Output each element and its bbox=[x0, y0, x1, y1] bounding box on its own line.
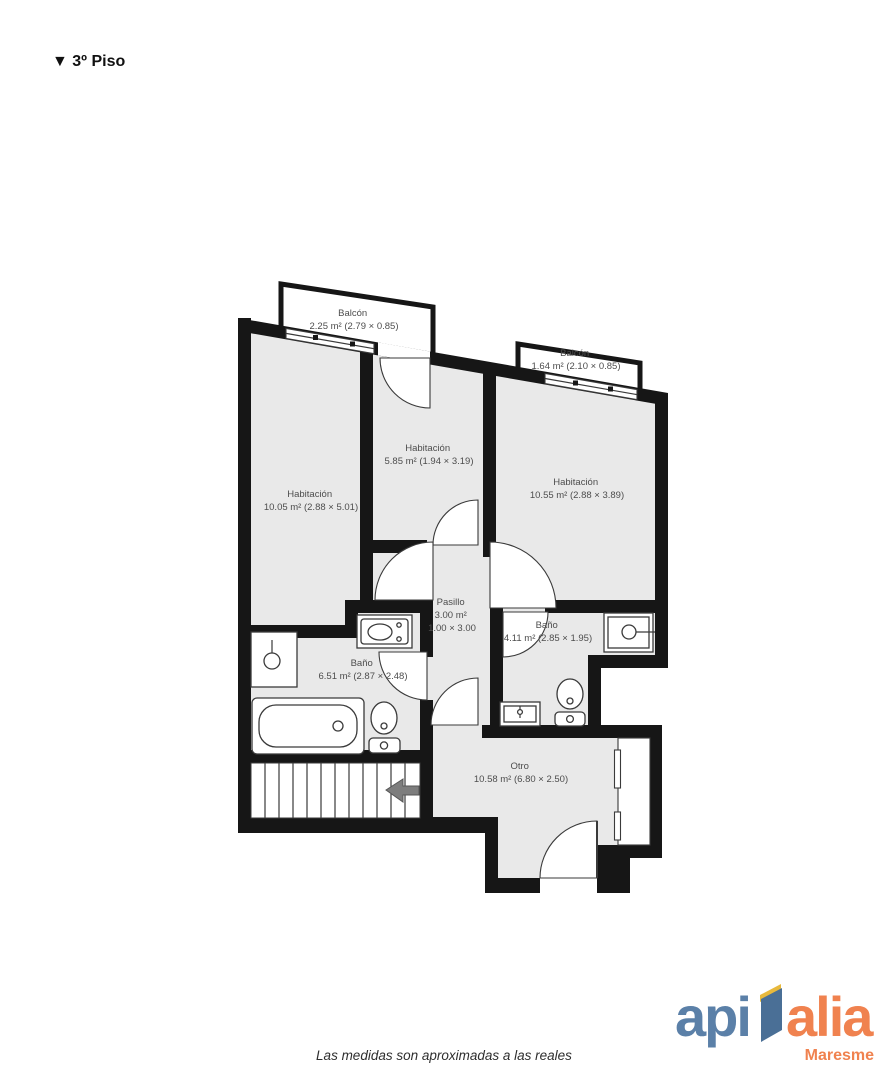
stairs bbox=[251, 763, 420, 818]
bathtub-icon bbox=[252, 698, 364, 754]
page-title: ▼ 3º Piso bbox=[52, 53, 125, 70]
disclaimer-text: Las medidas son aproximadas a las reales bbox=[316, 1048, 572, 1063]
toilet-icon bbox=[555, 679, 585, 726]
window-bay bbox=[615, 738, 651, 845]
logo-tagline: Maresme bbox=[805, 1047, 874, 1064]
sink-icon bbox=[357, 615, 412, 648]
outside-notch bbox=[601, 668, 691, 725]
shower-icon bbox=[251, 632, 297, 687]
logo-word-api: api bbox=[675, 985, 750, 1048]
sink-icon bbox=[500, 702, 540, 726]
floor-plan-page: ▼ 3º Piso bbox=[0, 0, 889, 1080]
wall-sink-icon bbox=[604, 613, 655, 652]
logo-word-alia: alia bbox=[786, 985, 874, 1048]
floor-plan: Balcón 2.25 m² (2.79 × 0.85) Balcón 1.64… bbox=[238, 284, 691, 893]
